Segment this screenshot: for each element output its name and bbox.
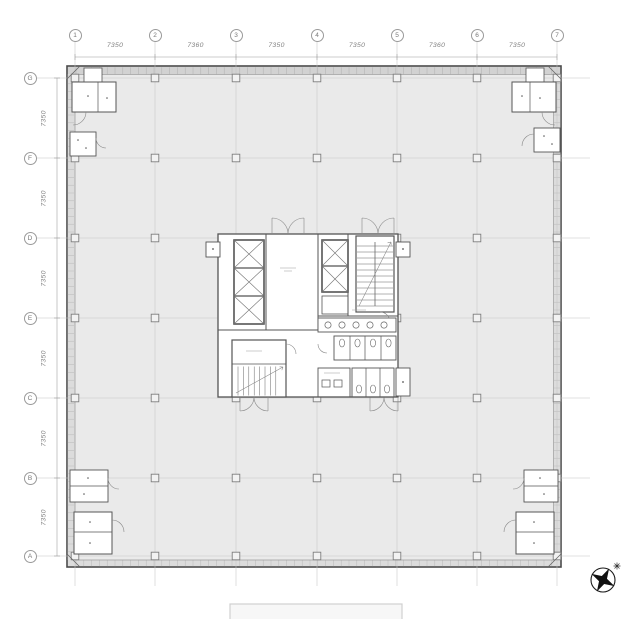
column-marker — [313, 474, 321, 482]
column-marker — [553, 394, 561, 402]
grid-row-dim-3: 7350 — [41, 257, 50, 301]
grid-col-dim-6: 7350 — [495, 42, 539, 51]
column-marker — [151, 552, 159, 560]
grid-row-bubble-4: E — [24, 312, 37, 325]
column-marker — [313, 154, 321, 162]
column-marker — [393, 74, 401, 82]
top-curtain-band — [68, 67, 560, 75]
grid-col-bubble-4: 4 — [311, 29, 324, 42]
column-marker — [151, 314, 159, 322]
column-marker — [151, 74, 159, 82]
duct-dot — [402, 248, 404, 250]
grid-row-bubble-6: B — [24, 472, 37, 485]
floor-plan-canvas: 1 2 3 4 5 6 7 7350 7360 7350 7350 7360 7… — [0, 0, 640, 619]
column-marker — [232, 74, 240, 82]
column-marker — [232, 552, 240, 560]
column-marker — [473, 474, 481, 482]
column-marker — [473, 314, 481, 322]
column-marker — [553, 234, 561, 242]
column-marker — [151, 154, 159, 162]
column-marker — [151, 234, 159, 242]
column-marker — [71, 234, 79, 242]
column-marker — [71, 74, 79, 82]
north-arrow-icon — [585, 562, 620, 597]
column-marker — [473, 552, 481, 560]
sink-counter — [318, 318, 396, 332]
grid-row-dim-6: 7350 — [41, 496, 50, 540]
column-marker — [313, 552, 321, 560]
column-marker — [151, 394, 159, 402]
duct-dot — [402, 381, 404, 383]
grid-row-dim-5: 7350 — [41, 417, 50, 461]
duct-dot — [212, 248, 214, 250]
column-marker — [313, 74, 321, 82]
grid-row-dim-1: 7350 — [41, 97, 50, 141]
grid-row-bubble-7: A — [24, 550, 37, 563]
grid-row-bubble-1: G — [24, 72, 37, 85]
grid-row-bubble-2: F — [24, 152, 37, 165]
column-marker — [473, 394, 481, 402]
column-marker — [553, 154, 561, 162]
grid-col-dim-4: 7350 — [335, 42, 379, 51]
column-marker — [473, 154, 481, 162]
elevator-bank-left — [234, 240, 264, 324]
column-marker — [473, 234, 481, 242]
staircase-bottom-left — [232, 340, 296, 397]
staircase-right — [356, 236, 394, 322]
bottom-curtain-band — [68, 560, 560, 567]
grid-col-dim-2: 7360 — [174, 42, 218, 51]
grid-col-bubble-3: 3 — [230, 29, 243, 42]
grid-row-bubble-3: D — [24, 232, 37, 245]
grid-col-bubble-6: 6 — [471, 29, 484, 42]
grid-col-dim-3: 7350 — [255, 42, 299, 51]
column-marker — [232, 474, 240, 482]
grid-col-bubble-7: 7 — [551, 29, 564, 42]
column-marker — [232, 154, 240, 162]
column-marker — [151, 474, 159, 482]
column-marker — [393, 552, 401, 560]
floor-plan-drawing — [0, 0, 640, 619]
grid-row-dim-4: 7350 — [41, 337, 50, 381]
grid-col-bubble-5: 5 — [391, 29, 404, 42]
column-marker — [393, 154, 401, 162]
grid-col-bubble-1: 1 — [69, 29, 82, 42]
grid-col-bubble-2: 2 — [149, 29, 162, 42]
column-marker — [473, 74, 481, 82]
grid-row-bubble-5: C — [24, 392, 37, 405]
column-marker — [393, 474, 401, 482]
title-block-fragment — [230, 604, 402, 619]
north-marker — [614, 563, 621, 570]
service-core — [206, 218, 410, 411]
column-marker — [71, 394, 79, 402]
grid-row-dim-2: 7350 — [41, 177, 50, 221]
grid-col-dim-1: 7350 — [93, 42, 137, 51]
grid-col-dim-5: 7360 — [415, 42, 459, 51]
column-marker — [553, 314, 561, 322]
column-marker — [71, 314, 79, 322]
